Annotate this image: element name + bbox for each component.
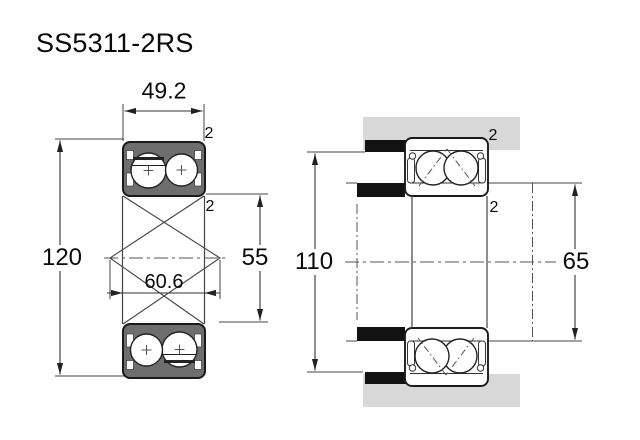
bearing-drawing-page: SS5311-2RS 49.2 120 55 60.6 2 2 110 65 2… xyxy=(0,0,640,440)
drawing-title: SS5311-2RS xyxy=(36,30,194,57)
housing-shoulder-top xyxy=(365,140,407,152)
chamfer-label: 2 xyxy=(206,199,215,215)
shaft-shoulder-bottom xyxy=(357,327,405,341)
mounted-bearing-view xyxy=(307,117,582,407)
mounted-bearing-section-bottom xyxy=(405,328,488,386)
housing-abutment-dim-label: 110 xyxy=(291,249,337,275)
bore-dim-label: 55 xyxy=(238,245,273,271)
ball-icon xyxy=(444,151,478,185)
chamfer-label: 2 xyxy=(489,128,498,144)
seal-right xyxy=(479,158,486,183)
shaft-shoulder-top xyxy=(357,183,405,197)
shaft-abutment-dim-label: 65 xyxy=(559,249,594,275)
housing-shoulder-bottom xyxy=(365,372,407,384)
bearing-section-top xyxy=(123,142,205,196)
chamfer-label: 2 xyxy=(490,200,499,216)
contact-angle-construction xyxy=(110,196,204,324)
arrowhead-icon xyxy=(111,290,123,296)
contact-angle-construction xyxy=(123,196,220,324)
outer-diameter-dim-label: 120 xyxy=(38,245,86,271)
seal-left xyxy=(408,158,415,183)
arrowhead-icon xyxy=(205,290,217,296)
width-dim-label: 49.2 xyxy=(142,80,187,103)
technical-drawing xyxy=(0,0,640,440)
mounted-bearing-section-top xyxy=(405,138,488,196)
pitch-dim-label: 60.6 xyxy=(145,272,184,292)
bearing-section-bottom xyxy=(123,324,205,378)
chamfer-label: 2 xyxy=(205,126,214,142)
bearing-cross-section-view xyxy=(55,104,268,378)
